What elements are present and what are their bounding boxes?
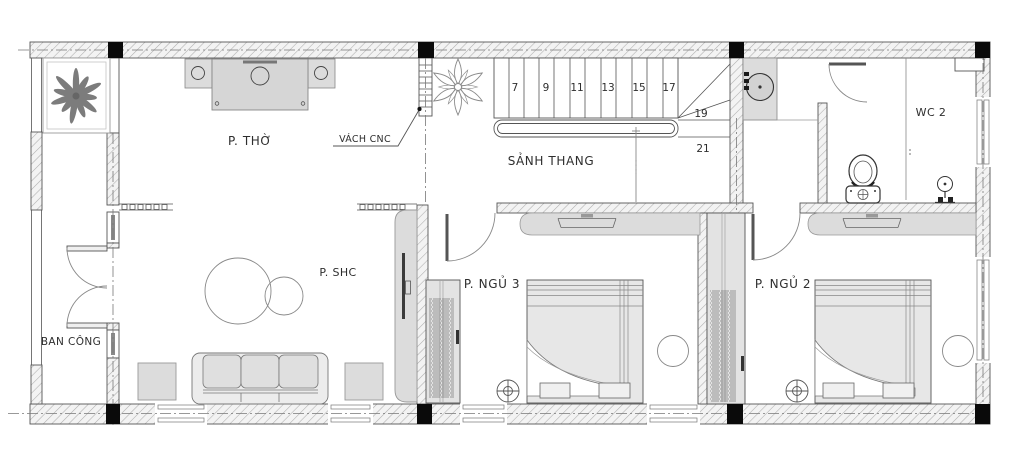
column bbox=[729, 42, 744, 58]
column bbox=[975, 42, 990, 58]
bedroom2-top-wall bbox=[800, 203, 976, 213]
column bbox=[417, 404, 432, 424]
stair-number: 11 bbox=[570, 82, 583, 94]
bedroom3-top-wall bbox=[497, 203, 753, 213]
stair-number: 19 bbox=[694, 108, 707, 120]
wc-partition-wall bbox=[818, 103, 827, 203]
room-label-wc2: WC 2 bbox=[916, 106, 947, 119]
column bbox=[108, 42, 123, 58]
tv-screen bbox=[402, 253, 405, 319]
stair-number: 13 bbox=[601, 82, 614, 94]
railing-left bbox=[119, 204, 173, 210]
altar-table bbox=[185, 59, 335, 110]
column bbox=[418, 42, 434, 58]
stool-bedroom2 bbox=[943, 336, 974, 367]
floor-plan-canvas: 7 9 11 13 15 17 19 21 bbox=[0, 0, 1024, 468]
builtin-wardrobe-bedroom2 bbox=[808, 213, 976, 235]
bedroom2-door bbox=[753, 213, 800, 260]
wardrobe-bedroom2 bbox=[707, 213, 745, 404]
balcony-double-door bbox=[67, 246, 107, 328]
window bbox=[647, 403, 700, 425]
annotation-cnc: VÁCH CNC bbox=[339, 133, 391, 145]
bed-bedroom3 bbox=[527, 280, 643, 403]
toilet bbox=[846, 155, 880, 203]
wc-divider-line bbox=[906, 58, 911, 200]
side-table-right bbox=[345, 363, 383, 400]
stool-bedroom3 bbox=[658, 336, 689, 367]
stair-number: 17 bbox=[662, 82, 675, 94]
ceiling-fan-bedroom2 bbox=[786, 380, 808, 402]
flower-plant bbox=[432, 59, 484, 115]
winder-steps bbox=[678, 64, 730, 137]
builtin-wardrobe-bedroom3 bbox=[520, 213, 700, 235]
window bbox=[328, 403, 373, 425]
room-label-bedroom2: P. NGỦ 2 bbox=[755, 275, 811, 291]
stair-direction-line bbox=[632, 127, 640, 202]
bedroom-divider-wall bbox=[698, 213, 707, 404]
wc-door bbox=[829, 64, 867, 102]
tv-cabinet bbox=[395, 210, 417, 402]
bed-bedroom2 bbox=[815, 280, 931, 403]
ceiling-fan-bedroom3 bbox=[497, 380, 519, 402]
floor-plan-drawing: 7 9 11 13 15 17 19 21 bbox=[0, 0, 1024, 468]
palm-plant bbox=[43, 58, 110, 133]
sofa bbox=[192, 353, 328, 404]
stair-treads bbox=[494, 58, 678, 118]
shower-fixture bbox=[935, 177, 955, 203]
room-label-balcony: BAN CÔNG bbox=[41, 335, 101, 348]
column bbox=[727, 404, 743, 424]
window bbox=[460, 403, 507, 425]
column bbox=[975, 404, 990, 424]
washbasin-counter bbox=[743, 58, 818, 120]
side-table-left bbox=[138, 363, 176, 400]
stair-number: 9 bbox=[543, 82, 550, 94]
window bbox=[155, 403, 207, 425]
railing-right bbox=[357, 204, 417, 210]
column bbox=[106, 404, 120, 424]
room-label-stair-hall: SẢNH THANG bbox=[508, 152, 594, 168]
handrail bbox=[494, 120, 678, 137]
stair-number: 15 bbox=[632, 82, 645, 94]
room-label-worship: P. THỜ bbox=[228, 133, 272, 148]
room-label-bedroom3: P. NGỦ 3 bbox=[464, 275, 520, 291]
coffee-table bbox=[205, 258, 303, 324]
bedroom3-door bbox=[447, 213, 495, 261]
left-wall bbox=[31, 58, 42, 404]
stair-number: 7 bbox=[512, 82, 519, 94]
duct-box bbox=[955, 58, 984, 71]
wardrobe-bedroom3 bbox=[426, 280, 460, 403]
room-label-living: P. SHC bbox=[319, 266, 356, 279]
staircase: 7 9 11 13 15 17 19 21 bbox=[494, 58, 730, 202]
stair-number: 21 bbox=[696, 143, 709, 155]
